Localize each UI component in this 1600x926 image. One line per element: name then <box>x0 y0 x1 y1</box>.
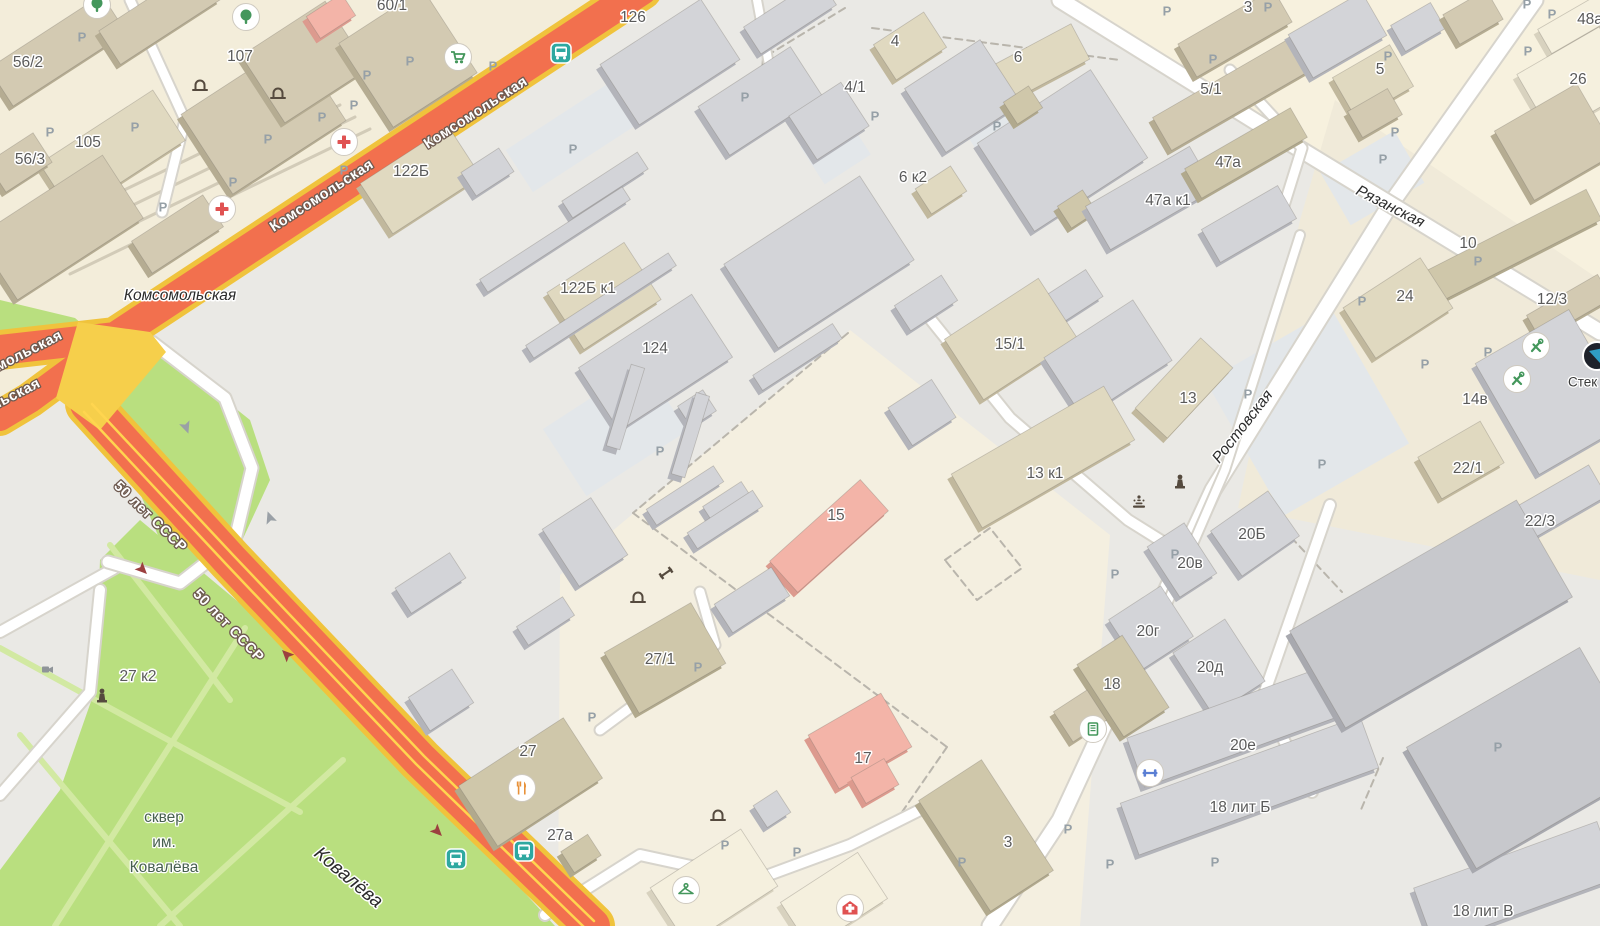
building-label: 4/1 <box>844 79 866 96</box>
pharmacy-icon[interactable] <box>209 196 236 223</box>
parking-marker: Р <box>350 97 359 112</box>
glyph <box>1144 769 1147 777</box>
bus-stop-icon[interactable] <box>551 43 571 63</box>
parking-marker: Р <box>588 709 597 724</box>
gym-icon[interactable] <box>1137 760 1164 787</box>
building-label: 124 <box>642 340 668 357</box>
glyph <box>1154 769 1157 777</box>
parking-marker: Р <box>1163 3 1172 18</box>
restaurant-icon[interactable] <box>509 775 536 802</box>
parking-marker: Р <box>1244 386 1253 401</box>
parking-marker: Р <box>46 124 55 139</box>
building-label: 26 <box>1569 71 1586 88</box>
dry-cleaning-icon[interactable] <box>673 877 700 904</box>
parking-marker: Р <box>1379 151 1388 166</box>
glyph <box>1143 500 1145 502</box>
parking-marker: Р <box>1524 43 1533 58</box>
building-label: 6 к2 <box>899 169 927 186</box>
glyph <box>1133 506 1145 508</box>
parking-marker: Р <box>340 162 349 177</box>
building-label: 24 <box>1396 288 1414 305</box>
glyph <box>1134 500 1136 502</box>
glyph <box>1175 486 1185 489</box>
bus-stop-icon[interactable] <box>446 849 466 869</box>
bus-stop-icon[interactable] <box>514 841 534 861</box>
glyph <box>245 19 247 24</box>
bus-wheel <box>451 863 454 866</box>
glyph <box>520 782 521 787</box>
building-label: 13 к1 <box>1027 465 1064 482</box>
building-label: 3 <box>1244 0 1253 16</box>
parking-marker: Р <box>1264 0 1273 14</box>
parking-marker: Р <box>229 174 238 189</box>
building-label: 22/1 <box>1453 460 1483 477</box>
building-label: 122Б к1 <box>560 280 616 297</box>
map-stage: 60/110710556/256/3126122Б122Б к112444/16… <box>0 0 1600 926</box>
building-label: 47а к1 <box>1145 192 1191 209</box>
parking-marker: Р <box>489 58 498 73</box>
grocery-icon[interactable] <box>445 44 472 71</box>
bus-window <box>520 847 529 851</box>
parking-marker: Р <box>569 141 578 156</box>
parking-marker: Р <box>1421 356 1430 371</box>
glyph <box>97 700 107 703</box>
car-service-icon[interactable] <box>1523 333 1550 360</box>
map-canvas[interactable]: 60/110710556/256/3126122Б122Б к112444/16… <box>0 0 1600 926</box>
parking-marker: Р <box>793 844 802 859</box>
poi-bg <box>445 44 472 71</box>
parking-marker: Р <box>694 659 703 674</box>
parking-marker: Р <box>958 854 967 869</box>
building-label: 48а <box>1577 11 1600 28</box>
building-label: 20в <box>1177 555 1202 572</box>
bus-wheel <box>526 855 529 858</box>
bus-window <box>557 49 566 53</box>
building-label: 126 <box>620 9 646 26</box>
glyph <box>99 694 105 701</box>
parking-marker: Р <box>741 89 750 104</box>
glyph <box>846 907 855 910</box>
building-label: 18 лит Б <box>1210 799 1271 816</box>
building-label: 18 лит В <box>1453 903 1514 920</box>
building-label: 5 <box>1376 61 1385 78</box>
parking-marker: Р <box>656 443 665 458</box>
parking-marker: Р <box>264 131 273 146</box>
building-label: 17 <box>854 750 871 767</box>
parking-marker: Р <box>363 67 372 82</box>
parking-marker: Р <box>1523 0 1532 11</box>
parking-marker: Р <box>78 29 87 44</box>
park-name-label: им. <box>152 834 176 851</box>
glyph <box>1091 728 1096 729</box>
parking-marker: Р <box>1106 856 1115 871</box>
park-name-label: сквер <box>144 809 184 826</box>
glyph <box>518 786 520 795</box>
parking-marker: Р <box>406 53 415 68</box>
building-label: 47а <box>1215 154 1241 171</box>
parking-marker: Р <box>1358 293 1367 308</box>
medical-icon[interactable] <box>837 895 864 922</box>
parking-marker: Р <box>1064 821 1073 836</box>
park-name-label: Ковалёва <box>130 859 199 876</box>
parking-marker: Р <box>993 118 1002 133</box>
parking-marker: Р <box>1474 253 1483 268</box>
building-label: 20Б <box>1238 526 1265 543</box>
building-label: 20д <box>1197 659 1223 676</box>
glyph <box>460 60 463 63</box>
glyph <box>1137 500 1141 502</box>
glyph <box>455 60 458 63</box>
glyph <box>96 7 98 12</box>
car-service-icon[interactable] <box>1504 366 1531 393</box>
bus-wheel <box>556 57 559 60</box>
parking-marker: Р <box>721 837 730 852</box>
camera-icon <box>42 667 53 674</box>
building-label: 15/1 <box>995 336 1025 353</box>
building-label: 3 <box>1004 834 1013 851</box>
building-label: 27 к2 <box>120 668 157 685</box>
bus-wheel <box>519 855 522 858</box>
parking-marker: Р <box>1171 546 1180 561</box>
tree-icon[interactable] <box>233 4 260 31</box>
glyph <box>241 10 252 21</box>
street-name-label: Комсомольская <box>124 287 236 304</box>
parking-marker: Р <box>871 108 880 123</box>
parking-marker: Р <box>1209 51 1218 66</box>
building-label: 22/3 <box>1525 513 1555 530</box>
building-label: 122Б <box>393 163 429 180</box>
building-label: 18 <box>1103 676 1120 693</box>
glyph <box>1178 475 1183 480</box>
building-label: 107 <box>227 48 253 65</box>
building-label: 13 <box>1179 390 1196 407</box>
edge-poi-label: Стек <box>1568 375 1597 390</box>
glyph <box>1091 725 1096 726</box>
poi-bg <box>673 877 700 904</box>
building-label: 27 <box>519 743 536 760</box>
parking-marker: Р <box>1318 456 1327 471</box>
parking-marker: Р <box>159 199 168 214</box>
building-label: 14в <box>1462 391 1487 408</box>
glyph <box>100 689 105 694</box>
building-label: 12/3 <box>1537 291 1567 308</box>
parking-marker: Р <box>1494 739 1503 754</box>
bus-wheel <box>563 57 566 60</box>
glyph <box>1177 480 1183 487</box>
parking-marker: Р <box>1211 854 1220 869</box>
parking-marker: Р <box>1111 566 1120 581</box>
glyph <box>1137 495 1140 498</box>
building-label: 10 <box>1459 235 1477 252</box>
building-label: 20г <box>1137 623 1160 640</box>
building-label: 56/3 <box>15 151 45 168</box>
parking-marker: Р <box>1484 344 1493 359</box>
poi-bg <box>1080 716 1107 743</box>
glyph <box>1136 503 1143 505</box>
parking-marker: Р <box>318 109 327 124</box>
building-label: 27/1 <box>645 651 675 668</box>
glyph <box>338 140 351 144</box>
parking-marker: Р <box>1548 6 1557 21</box>
building-label: 56/2 <box>13 54 43 71</box>
building-label: 27а <box>547 827 573 844</box>
building-label: 105 <box>75 134 101 151</box>
glyph <box>1091 730 1096 731</box>
glyph <box>216 207 229 211</box>
building-label: 5/1 <box>1200 81 1222 98</box>
parking-marker: Р <box>131 119 140 134</box>
glyph <box>42 667 49 673</box>
building-label: 6 <box>1014 49 1023 66</box>
poi-bg <box>509 775 536 802</box>
building-label: 20е <box>1230 737 1256 754</box>
parking-marker: Р <box>1384 48 1393 63</box>
vending-icon[interactable] <box>1080 716 1107 743</box>
building-label: 15 <box>827 507 844 524</box>
parking-marker: Р <box>1391 124 1400 139</box>
building-label: 60/1 <box>377 0 407 14</box>
bus-window <box>452 855 461 859</box>
bus-wheel <box>458 863 461 866</box>
pharmacy-icon[interactable] <box>331 129 358 156</box>
building-label: 4 <box>891 33 900 50</box>
